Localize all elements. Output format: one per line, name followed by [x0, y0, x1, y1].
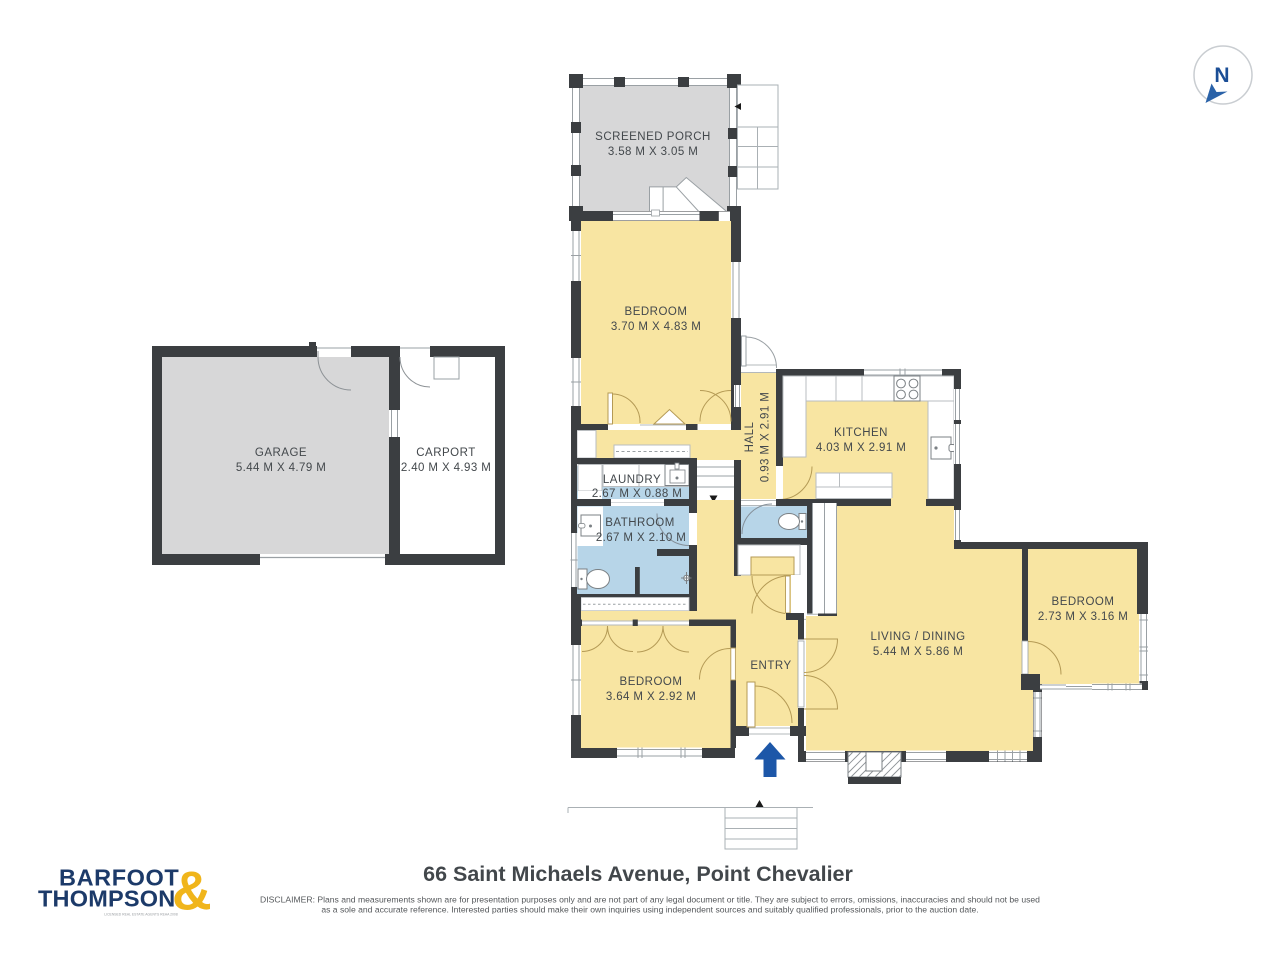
svg-text:3.70 M X 4.83 M: 3.70 M X 4.83 M [611, 321, 701, 333]
svg-text:BEDROOM: BEDROOM [625, 306, 688, 318]
svg-text:GARAGE: GARAGE [255, 447, 307, 459]
svg-text:&: & [172, 860, 212, 922]
svg-text:ENTRY: ENTRY [750, 660, 791, 672]
svg-text:HALL: HALL [744, 422, 756, 453]
svg-text:DISCLAIMER: Plans and measurem: DISCLAIMER: Plans and measurements shown… [260, 895, 1040, 905]
svg-text:2.40 M X 4.93 M: 2.40 M X 4.93 M [401, 462, 491, 474]
svg-text:BEDROOM: BEDROOM [1052, 596, 1115, 608]
svg-text:0.93 M X 2.91 M: 0.93 M X 2.91 M [760, 392, 772, 482]
svg-text:N: N [1214, 64, 1229, 87]
svg-text:2.67 M X 0.88 M: 2.67 M X 0.88 M [592, 488, 682, 500]
svg-text:CARPORT: CARPORT [416, 447, 476, 459]
svg-text:BEDROOM: BEDROOM [620, 676, 683, 688]
svg-text:2.67 M X 2.10 M: 2.67 M X 2.10 M [596, 532, 686, 544]
svg-text:5.44 M X 5.86 M: 5.44 M X 5.86 M [873, 646, 963, 658]
svg-text:66 Saint Michaels Avenue, Poin: 66 Saint Michaels Avenue, Point Chevalie… [423, 862, 853, 886]
svg-text:SCREENED PORCH: SCREENED PORCH [595, 131, 711, 143]
svg-text:KITCHEN: KITCHEN [834, 427, 888, 439]
svg-text:LIVING / DINING: LIVING / DINING [870, 631, 965, 643]
svg-text:5.44 M X 4.79 M: 5.44 M X 4.79 M [236, 462, 326, 474]
svg-text:LAUNDRY: LAUNDRY [603, 474, 661, 486]
svg-text:as a sole and accurate referen: as a sole and accurate reference. Intere… [321, 905, 978, 915]
svg-text:BATHROOM: BATHROOM [605, 517, 675, 529]
svg-text:3.64 M X 2.92 M: 3.64 M X 2.92 M [606, 691, 696, 703]
svg-text:3.58 M X 3.05 M: 3.58 M X 3.05 M [608, 146, 698, 158]
svg-text:LICENSED REAL ESTATE AGENTS RE: LICENSED REAL ESTATE AGENTS REAA 2008 [104, 913, 178, 917]
svg-text:THOMPSON: THOMPSON [38, 886, 175, 912]
svg-text:2.73 M X 3.16 M: 2.73 M X 3.16 M [1038, 611, 1128, 623]
svg-text:4.03 M X 2.91 M: 4.03 M X 2.91 M [816, 442, 906, 454]
